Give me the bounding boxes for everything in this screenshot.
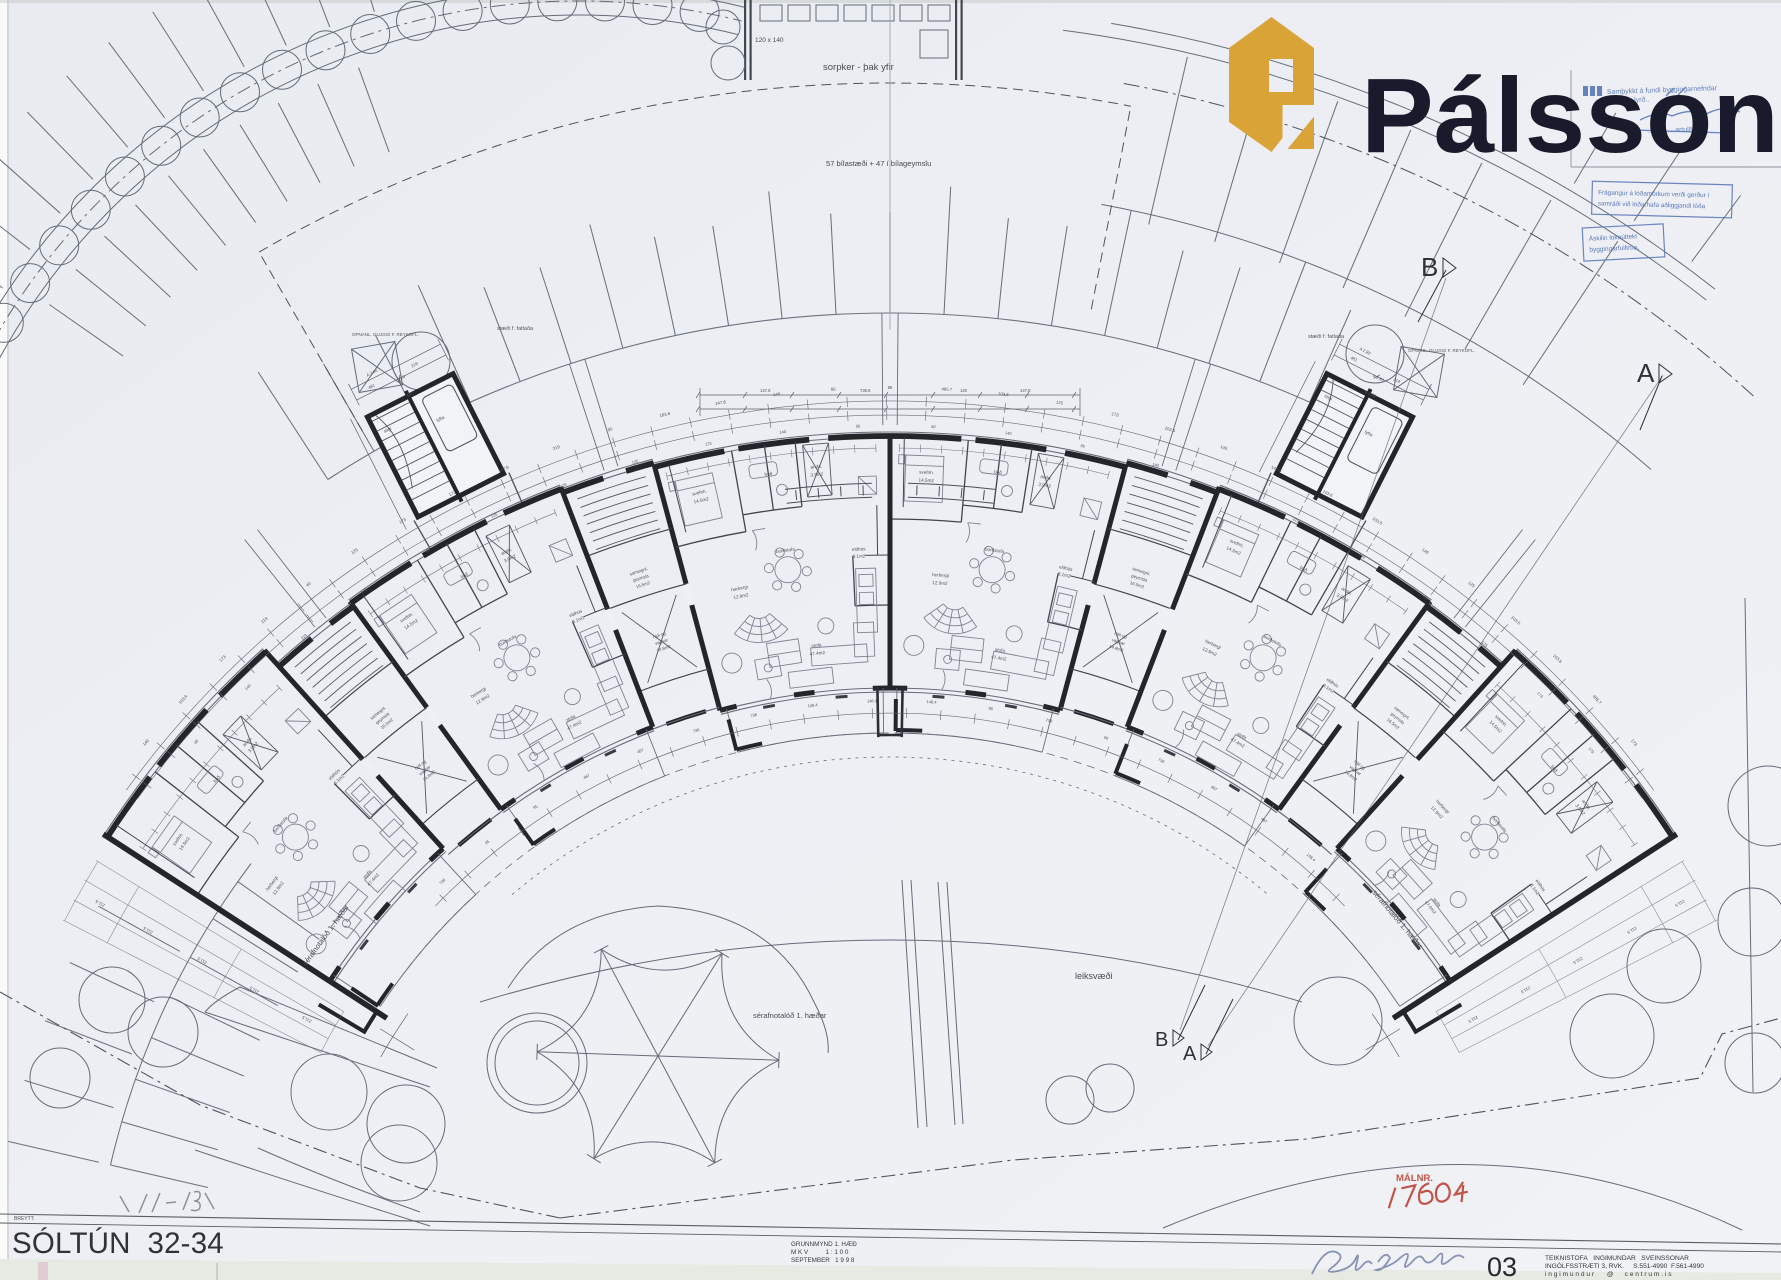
svg-text:GRUNNMYND 1. HÆÐ: GRUNNMYND 1. HÆÐ xyxy=(791,1241,857,1248)
svg-text:Pálsson: Pálsson xyxy=(1361,57,1779,175)
svg-text:MÁLNR.: MÁLNR. xyxy=(1396,1173,1433,1184)
svg-text:B: B xyxy=(1155,1029,1168,1051)
svg-text:M K V 1 : 1 0 0: M K V 1 : 1 0 0 xyxy=(791,1249,849,1256)
svg-text:140: 140 xyxy=(960,388,968,393)
svg-text:147.8: 147.8 xyxy=(1020,388,1031,393)
svg-text:148.4: 148.4 xyxy=(926,699,937,705)
svg-text:95: 95 xyxy=(888,385,893,390)
svg-text:95: 95 xyxy=(831,387,837,392)
svg-text:736.6: 736.6 xyxy=(860,388,871,393)
svg-text:A: A xyxy=(1183,1043,1197,1065)
svg-text:8.1m2: 8.1m2 xyxy=(853,553,866,559)
svg-text:TEIKNISTOFA INGIMUNDAR SVE: TEIKNISTOFA INGIMUNDAR SVEINSSONAR xyxy=(1545,1255,1689,1262)
svg-text:svefnh.: svefnh. xyxy=(919,469,934,475)
svg-text:bað: bað xyxy=(994,468,1003,475)
svg-text:andd.: andd. xyxy=(810,464,822,470)
svg-text:eldhús: eldhús xyxy=(852,546,866,552)
svg-text:57 bílastæði + 47 í bílageymsl: 57 bílastæði + 47 í bílageymslu xyxy=(826,159,931,168)
svg-text:03: 03 xyxy=(1487,1252,1517,1280)
svg-text:OPNANL. GLUGGI F. REYKOFL.: OPNANL. GLUGGI F. REYKOFL. xyxy=(1408,348,1475,353)
svg-text:leiksvæði: leiksvæði xyxy=(1075,971,1113,981)
svg-text:B: B xyxy=(1421,252,1438,282)
svg-text:BREYTT:: BREYTT: xyxy=(14,1216,35,1222)
svg-text:485.7: 485.7 xyxy=(941,386,953,392)
svg-text:A: A xyxy=(1637,358,1655,388)
svg-text:sérafnotalóð 1. hæðar: sérafnotalóð 1. hæðar xyxy=(753,1011,827,1020)
svg-text:stæði f. fatlaða: stæði f. fatlaða xyxy=(497,325,534,332)
svg-text:OPNANL. GLUGGI F. REYKOFL.: OPNANL. GLUGGI F. REYKOFL. xyxy=(352,332,419,337)
svg-text:sorpker - þak yfir: sorpker - þak yfir xyxy=(823,62,894,73)
svg-text:148.4: 148.4 xyxy=(867,698,878,703)
svg-text:stæði f. fatlaða: stæði f. fatlaða xyxy=(1308,333,1345,340)
svg-text:14.5m2: 14.5m2 xyxy=(919,477,935,483)
svg-text:120 x 140: 120 x 140 xyxy=(755,37,784,44)
svg-text:i n g i m u n d u r @: i n g i m u n d u r @ c e n t r u m . i … xyxy=(1545,1271,1672,1278)
svg-text:stofa: stofa xyxy=(811,642,822,648)
svg-text:SEPTEMBER 1 9 9 8: SEPTEMBER 1 9 9 8 xyxy=(791,1257,855,1264)
svg-text:bað: bað xyxy=(764,470,773,477)
svg-text:INGÓLFSSTRÆTI 3, RVK. S.55: INGÓLFSSTRÆTI 3, RVK. S.551-4990 F.561-4… xyxy=(1545,1261,1704,1270)
svg-text:12.9m2: 12.9m2 xyxy=(932,580,948,586)
svg-text:SÓLTÚN 32-34: SÓLTÚN 32-34 xyxy=(12,1227,224,1260)
svg-text:140: 140 xyxy=(773,391,781,397)
svg-text:147.8: 147.8 xyxy=(760,388,771,393)
